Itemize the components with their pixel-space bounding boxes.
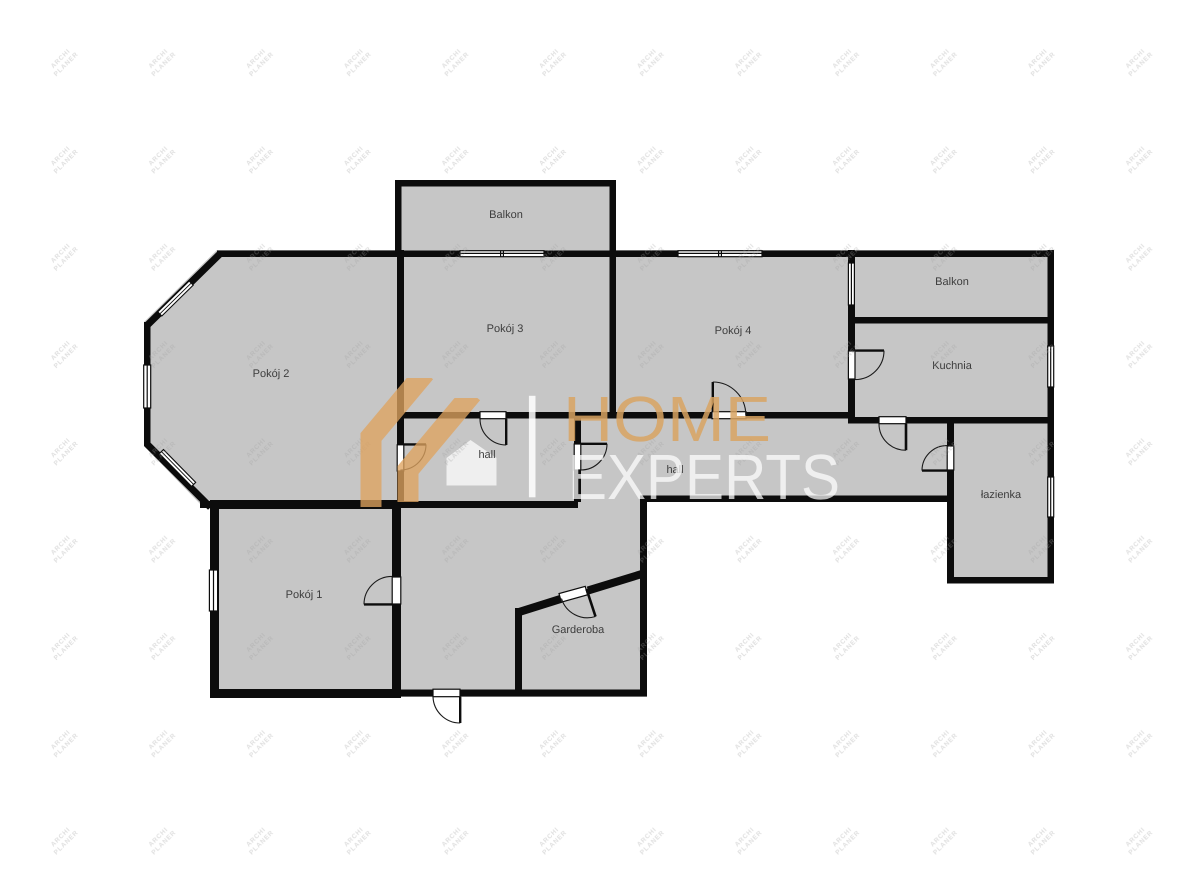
svg-text:EXPERTS: EXPERTS xyxy=(568,441,840,513)
